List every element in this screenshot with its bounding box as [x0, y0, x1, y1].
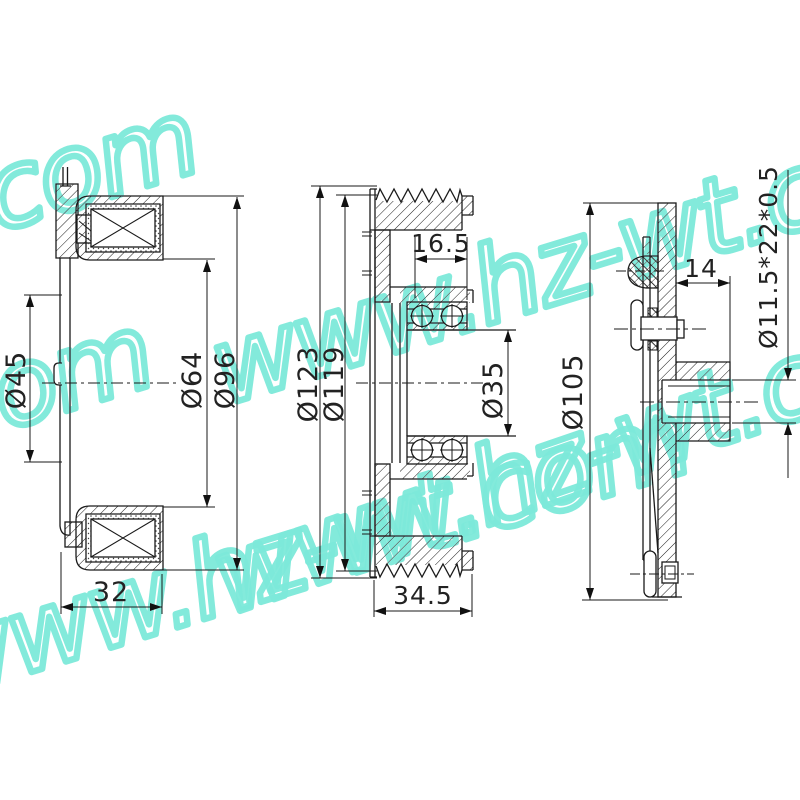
dim-label-35: Ø35: [478, 361, 509, 420]
engineering-drawing-canvas: Ø45 Ø64 Ø96 32: [0, 0, 800, 800]
watermark-text: www.hz-wt.com: [0, 376, 702, 724]
dim-label-345: 34.5: [393, 581, 453, 610]
belt-grooves-top: [376, 189, 462, 202]
drawing-page: Ø45 Ø64 Ø96 32: [0, 0, 800, 800]
dim-label-64: Ø64: [177, 351, 208, 410]
center-nut: [641, 317, 677, 340]
rivet: [662, 562, 678, 583]
dim-diameter-64: Ø64: [163, 259, 215, 507]
watermark-fragment: com: [0, 290, 165, 470]
